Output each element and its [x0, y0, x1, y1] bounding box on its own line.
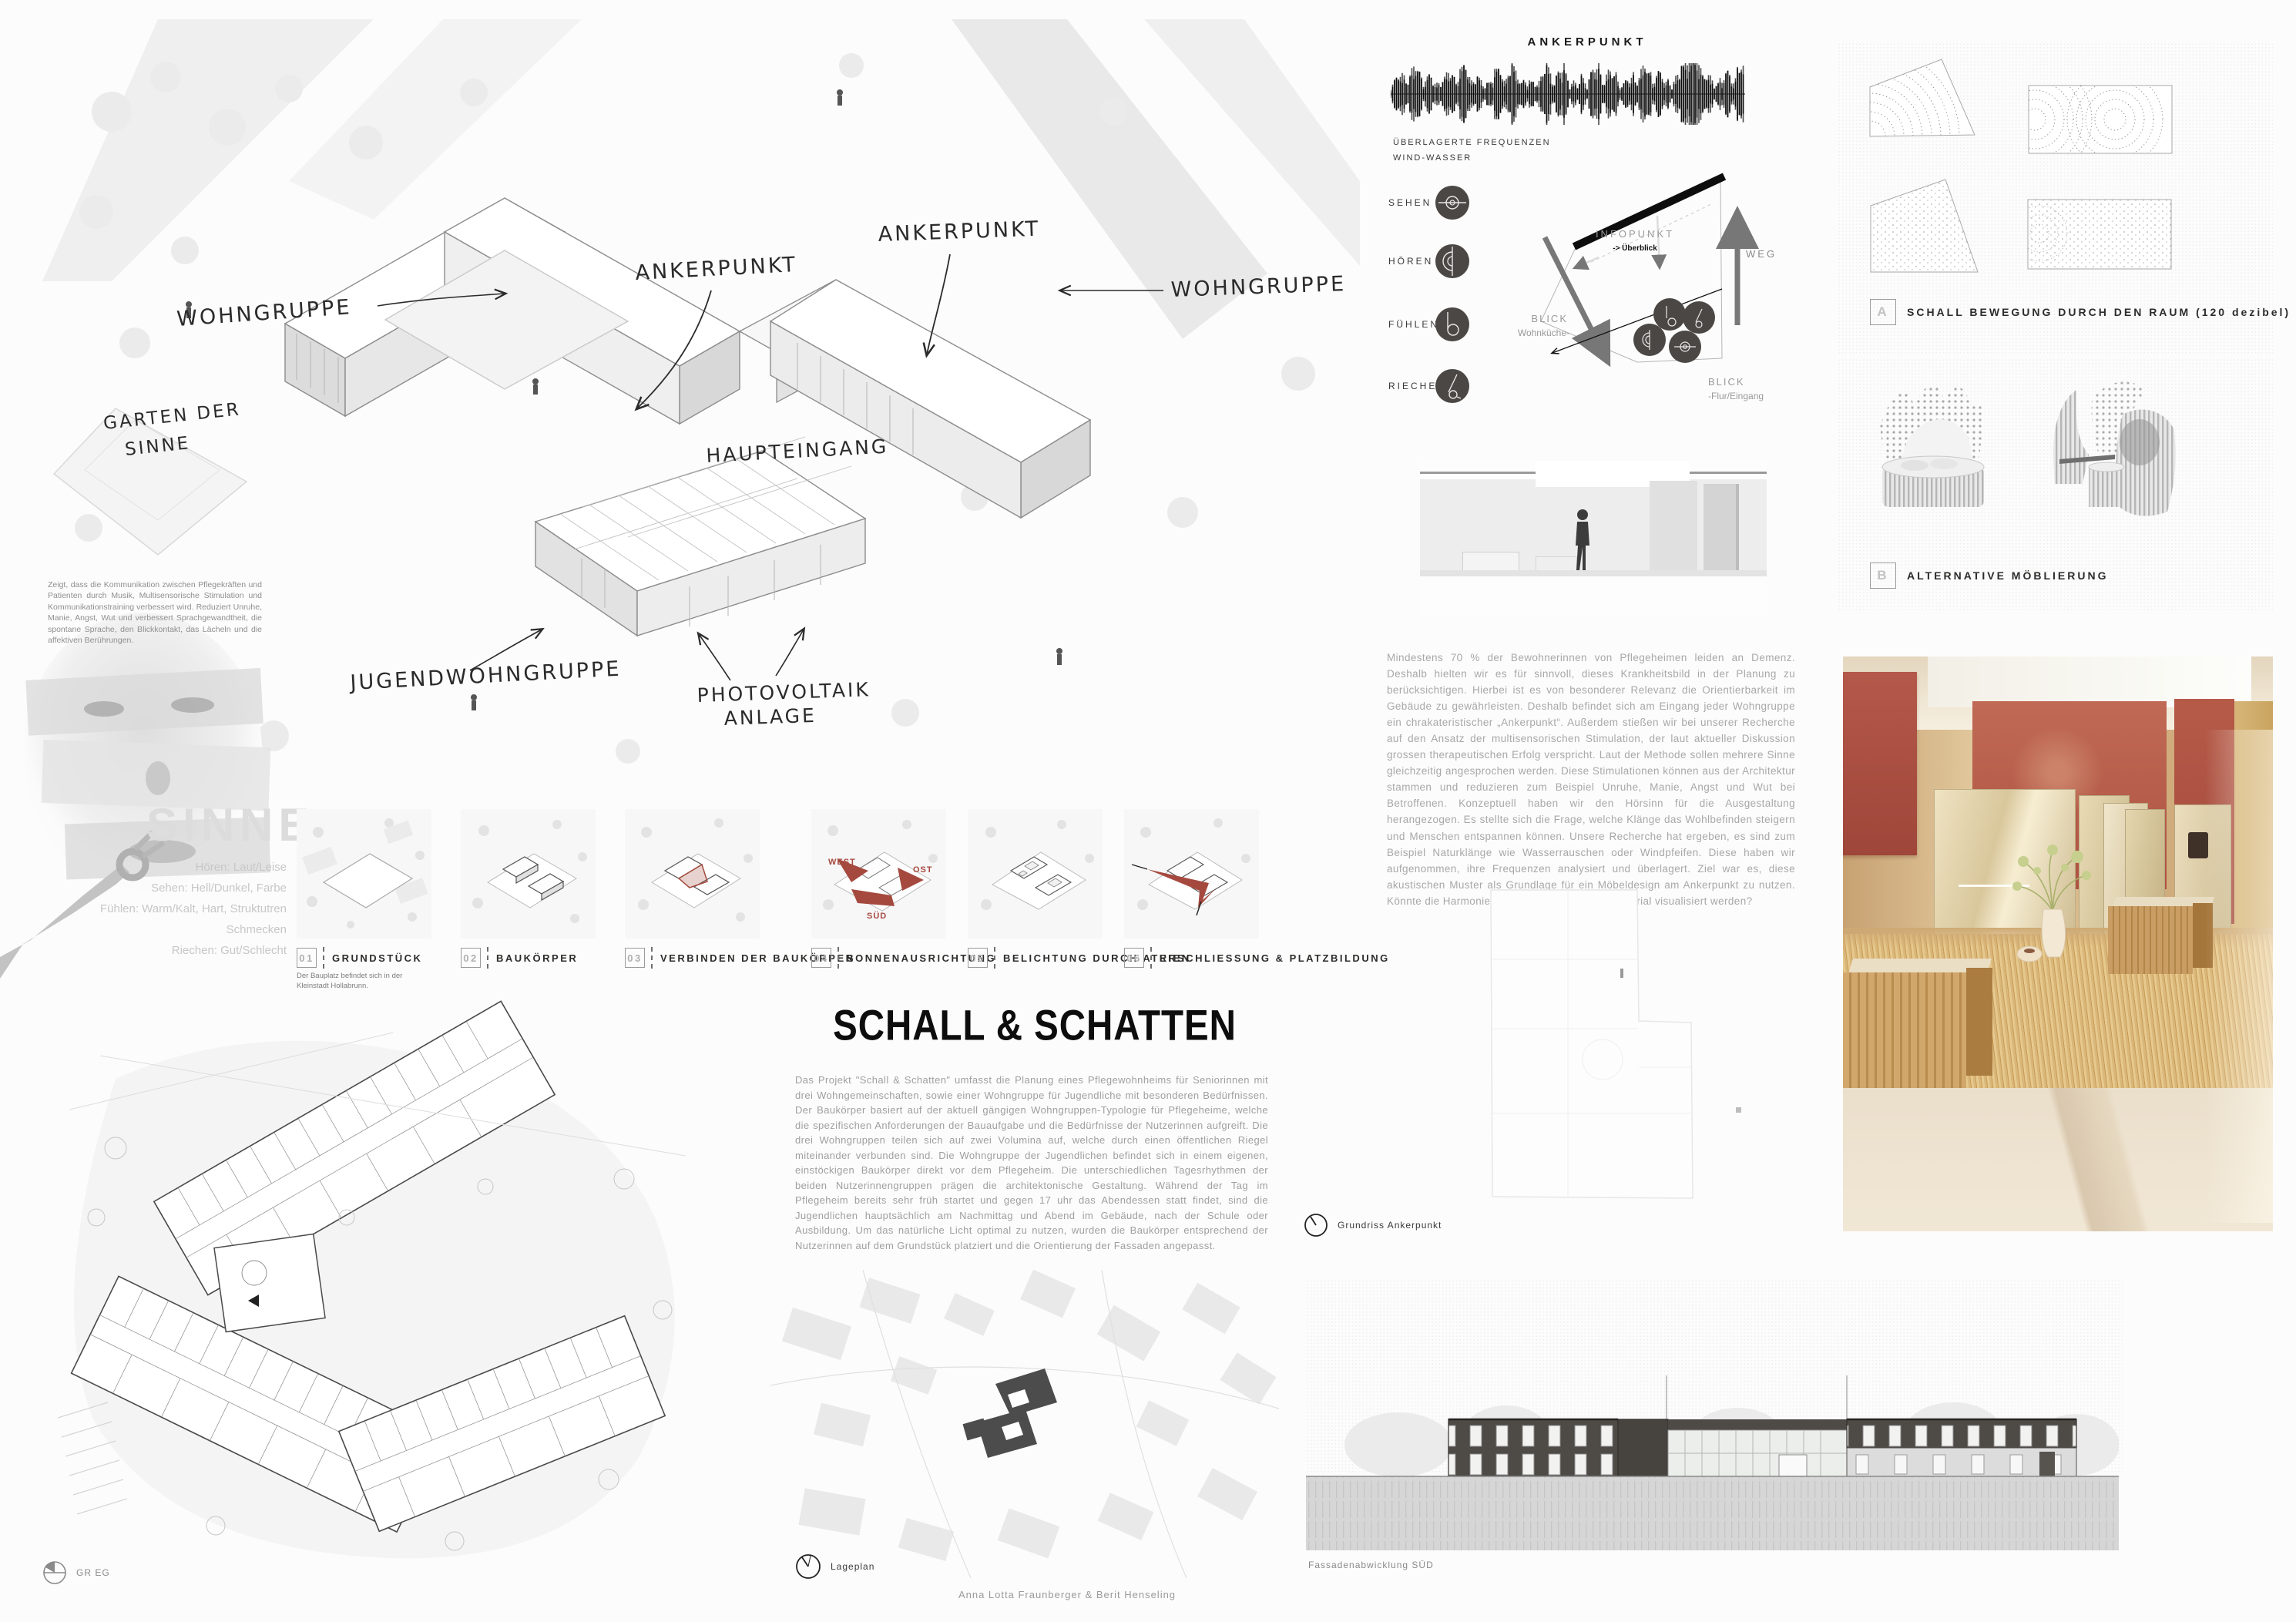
plant-in-vase	[2006, 840, 2099, 963]
eye-icon	[1435, 185, 1470, 220]
project-title: SCHALL & SCHATTEN	[804, 1000, 1266, 1050]
site-plan-footprint	[963, 1368, 1057, 1458]
label-photovoltaik-line1: PHOTOVOLTAIK	[697, 678, 871, 707]
floorplan-label-row: GR EG	[42, 1560, 110, 1585]
study-a-tag: A	[1870, 299, 1896, 325]
ankerpunkt-title: ANKERPUNKT	[1502, 35, 1672, 49]
diagram-number: 06	[1124, 948, 1144, 968]
site-plan-drawing	[770, 1270, 1279, 1578]
diagram-label: BAUKÖRPER	[496, 952, 578, 964]
section-render-image	[1420, 461, 1767, 615]
person-silhouette	[1571, 509, 1594, 573]
sinne-item: Fühlen: Warm/Kalt, Hart, Struktutren	[77, 898, 287, 919]
sinne-item: Schmecken	[77, 919, 287, 940]
study-b-label: ALTERNATIVE MÖBLIERUNG	[1907, 569, 2108, 582]
sinne-title: SINNE	[146, 798, 314, 851]
diagram-sonnenausrichtung: WEST OST SÜD 04 SONNENAUSRICHTUNG	[811, 809, 946, 969]
weg-label: WEG	[1746, 248, 1777, 260]
blick-wohnkueche-sublabel: Wohnküche-	[1518, 327, 1569, 338]
diagram-belichtung: 05 BELICHTUNG DURCH ATRIEN	[968, 809, 1103, 969]
blick-flur-label: BLICK	[1708, 376, 1745, 388]
label-ost: OST	[913, 865, 933, 875]
siteplan-label: Lageplan	[831, 1561, 874, 1572]
waveform-caption-line1: ÜBERLAGERTE FREQUENZEN	[1393, 136, 1551, 151]
project-description: Das Projekt "Schall & Schatten" umfasst …	[795, 1073, 1268, 1253]
ear-icon	[1435, 243, 1470, 279]
diagram-number: 01	[297, 948, 317, 968]
diagram-sonnenausrichtung-image: WEST OST SÜD	[811, 809, 946, 939]
elevation-label: Fassadenabwicklung SÜD	[1308, 1560, 1434, 1570]
interior-render-image	[1843, 657, 2273, 1231]
elevation-building	[1448, 1419, 2076, 1476]
wohngruppe-volume	[770, 280, 1090, 518]
diagram-grundstueck: 01 GRUNDSTÜCK Der Bauplatz befindet sich…	[297, 809, 431, 992]
waveform-caption: ÜBERLAGERTE FREQUENZEN WIND-WASSER	[1393, 136, 1551, 166]
furniture-sculpture-1	[1880, 385, 1984, 507]
label-sued: SÜD	[867, 911, 887, 921]
diagram-number: 04	[811, 948, 831, 968]
label-wohngruppe-right: WOHNGRUPPE	[1170, 272, 1346, 302]
label-jugendwohngruppe: JUGENDWOHNGRUPPE	[348, 657, 622, 695]
diagram-baukoerper-image	[461, 809, 596, 939]
siteplan-label-row: Lageplan	[795, 1553, 874, 1580]
north-arrow-icon	[42, 1560, 67, 1585]
north-compass-icon	[1304, 1213, 1328, 1237]
floor-plan-drawing	[23, 986, 740, 1595]
elevation-drawing	[1306, 1279, 2119, 1553]
label-west: WEST	[828, 858, 856, 867]
diagram-number: 02	[461, 948, 481, 968]
label-ankerpunkt-right: ANKERPUNKT	[878, 217, 1041, 247]
authors-credit: Anna Lotta Fraunberger & Berit Henseling	[944, 1589, 1190, 1600]
floorplan-label: GR EG	[76, 1567, 110, 1578]
sinne-list: Hören: Laut/Leise Sehen: Hell/Dunkel, Fa…	[77, 857, 287, 961]
diagram-grundstueck-image	[297, 809, 431, 939]
sinne-item: Sehen: Hell/Dunkel, Farbe	[77, 878, 287, 898]
label-haupteingang: HAUPTEINGANG	[706, 435, 889, 467]
diagram-erschliessung: 06 ERSCHLIESSUNG & PLATZBILDUNG	[1124, 809, 1259, 969]
diagram-verbinden: 03 VERBINDEN DER BAUKÖRPER	[625, 809, 760, 969]
diagram-erschliessung-image	[1124, 809, 1259, 939]
senior-home-volume	[285, 198, 740, 424]
sinne-item: Riechen: Gut/Schlecht	[77, 940, 287, 961]
diagram-label: GRUNDSTÜCK	[332, 952, 422, 964]
ankerpunkt-plan-diagram: INFOPUNKT -> Überblick WEG BLICK Wohnküc…	[1483, 171, 1807, 441]
sense-label-fuehlen: FÜHLEN	[1388, 319, 1439, 330]
nose-icon	[1435, 368, 1470, 404]
north-compass-icon	[795, 1553, 821, 1580]
blick-wohnkueche-label: BLICK	[1531, 313, 1568, 324]
waveform-caption-line2: WIND-WASSER	[1393, 151, 1551, 166]
touch-icon	[1435, 307, 1470, 342]
diagram-label: ERSCHLIESSUNG & PLATZBILDUNG	[1160, 952, 1390, 964]
infopunkt-label: INFOPUNKT	[1596, 228, 1674, 240]
youth-building-volume	[535, 437, 865, 636]
infopunkt-sublabel: -> Überblick	[1613, 243, 1657, 253]
ankerpunkt-floorplan-faint	[1445, 867, 1753, 1221]
presentation-board: WOHNGRUPPE GARTEN DER SINNE ANKERPUNKT A…	[0, 0, 2296, 1622]
diagram-number: 05	[968, 948, 988, 968]
sinne-note: Zeigt, dass die Kommunikation zwischen P…	[48, 579, 262, 646]
diagram-belichtung-image	[968, 809, 1103, 939]
label-photovoltaik-line2: ANLAGE	[723, 704, 817, 730]
sense-label-sehen: SEHEN	[1388, 197, 1432, 208]
label-garten-line1: GARTEN DER	[102, 399, 242, 434]
grundriss-label-row: Grundriss Ankerpunkt	[1304, 1213, 1442, 1237]
study-a-caption: A SCHALL BEWEGUNG DURCH DEN RAUM (120 de…	[1870, 299, 2291, 325]
sense-icon-cluster	[1633, 298, 1715, 363]
study-b-caption: B ALTERNATIVE MÖBLIERUNG	[1870, 562, 2108, 589]
study-a-label: SCHALL BEWEGUNG DURCH DEN RAUM (120 dezi…	[1907, 306, 2291, 318]
sinne-item: Hören: Laut/Leise	[77, 857, 287, 878]
sound-waveform-image	[1391, 62, 1745, 126]
sense-label-hoeren: HÖREN	[1388, 256, 1433, 267]
furniture-study-images	[1861, 368, 2200, 553]
diagram-verbinden-image	[625, 809, 760, 939]
label-ankerpunkt-center: ANKERPUNKT	[635, 253, 798, 285]
study-b-tag: B	[1870, 562, 1896, 589]
blick-flur-sublabel: -Flur/Eingang	[1708, 391, 1764, 401]
diagram-baukoerper: 02 BAUKÖRPER	[461, 809, 596, 969]
furniture-sculpture-2	[2053, 381, 2176, 515]
diagram-number: 03	[625, 948, 645, 968]
sound-study-patterns	[1861, 50, 2184, 281]
grundriss-label: Grundriss Ankerpunkt	[1338, 1220, 1442, 1231]
